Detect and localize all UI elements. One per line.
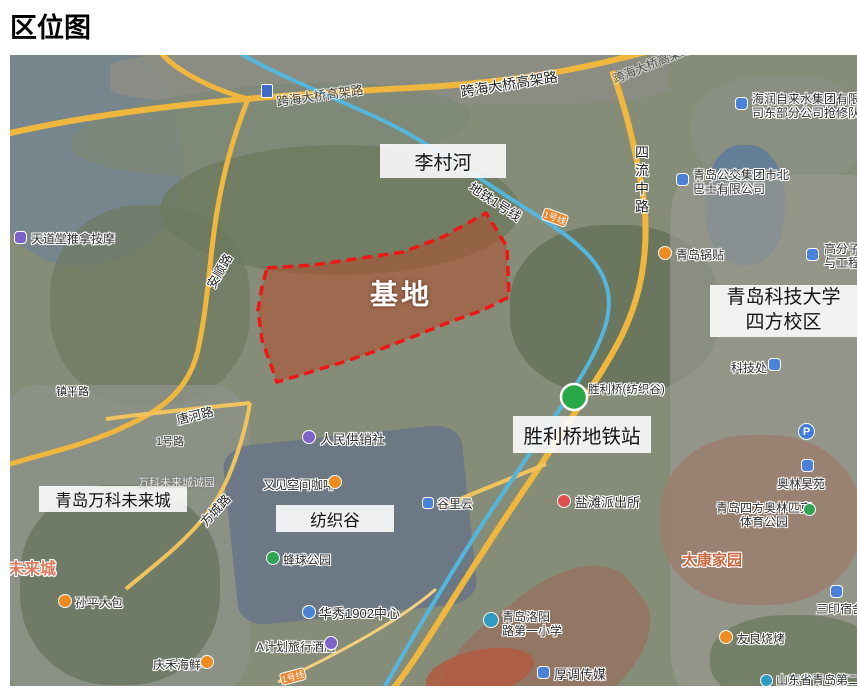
- cafe-icon: [328, 475, 342, 489]
- satellite-map: 基地 跨海大桥高架路 跨海大桥高架路 跨海大桥高架路 四流中路 安顺路 唐河路 …: [10, 55, 857, 686]
- poi-sunping-baozi: 孙平大包: [75, 596, 123, 610]
- poi-text: 高分子: [824, 242, 857, 256]
- poi-guotie-restaurant: 青岛锅贴: [676, 248, 724, 262]
- parking-icon: P: [798, 423, 815, 440]
- poi-text: 路第一小学: [502, 624, 562, 638]
- annotation-keji-university: 青岛科技大学 四方校区: [710, 285, 857, 337]
- building-icon: [801, 459, 814, 472]
- restaurant-icon: [200, 655, 214, 669]
- poi-qinghe-seafood: 庆禾海鲜: [153, 658, 201, 672]
- poi-text: 青岛洛阳: [502, 610, 562, 624]
- annotation-text: 四方校区: [745, 311, 821, 336]
- police-icon: [557, 494, 571, 508]
- poi-text: 巴士有限公司: [693, 182, 789, 196]
- road-label-yihaolu: 1号路: [156, 433, 184, 449]
- restaurant-icon: [658, 246, 672, 260]
- building-icon: [806, 248, 819, 261]
- annotation-text: 李村河: [414, 148, 471, 175]
- restaurant-icon: [58, 594, 72, 608]
- poi-text: 司东部分公司抢修队: [752, 106, 857, 120]
- building-icon: [768, 358, 781, 371]
- poi-text: 青岛公交集团市北: [693, 168, 789, 182]
- annotation-text: 青岛万科未来城: [55, 487, 171, 511]
- road-north-branch: [156, 55, 248, 99]
- station-marker: [561, 384, 587, 410]
- poi-bus-company: 青岛公交集团市北 巴士有限公司: [693, 168, 789, 196]
- poi-houdiao-media: 厚调传媒: [554, 667, 606, 682]
- building-icon: [537, 666, 550, 679]
- massage-icon: [14, 231, 27, 244]
- annotation-licunhe: 李村河: [380, 144, 506, 178]
- poi-olympic-sports-park: 青岛四方奥林匹克 体育公园: [716, 501, 812, 529]
- poi-aolin-haoyuan: 奥林昊苑: [777, 477, 825, 491]
- poi-text: 体育公园: [716, 515, 812, 529]
- building-icon: [735, 97, 748, 110]
- restaurant-icon: [719, 630, 733, 644]
- area-label-chengyuan: 万科未来城诚园: [138, 477, 215, 490]
- building-icon: [676, 173, 689, 186]
- poi-text: 青岛四方奥林匹克: [716, 501, 812, 515]
- annotation-fangzhigu: 纺织谷: [276, 505, 394, 532]
- building-icon: [830, 585, 843, 598]
- poi-gongxiaoshe: 人民供销社: [320, 432, 385, 447]
- annotation-text: 纺织谷: [310, 507, 360, 531]
- annotation-text: 青岛科技大学: [726, 286, 840, 311]
- poi-text: 与工程: [824, 256, 857, 270]
- poi-luoyang-primary-school: 青岛洛阳 路第一小学: [502, 610, 562, 638]
- site-label: 基地: [370, 273, 432, 313]
- poi-sanyin-dormitory: 三印宿舍: [816, 602, 857, 616]
- building-icon: [302, 605, 316, 619]
- area-label-taikang: 太康家园: [682, 549, 742, 570]
- poi-polymer-college: 高分子 与工程: [824, 242, 857, 270]
- road-label-siliu: 四流中路: [632, 145, 652, 217]
- area-label-weilaicheng: 未来城: [10, 555, 56, 579]
- highway-shield-icon: [261, 84, 273, 98]
- park-icon: [266, 551, 280, 565]
- school-icon: [483, 612, 499, 628]
- page-title: 区位图: [10, 6, 91, 45]
- poi-science-tech-office: 科技处: [731, 361, 767, 375]
- shop-icon: [302, 430, 316, 444]
- poi-qingdao-school: 山东省青岛第二十: [776, 673, 857, 686]
- poi-guliyun: 谷里云: [437, 497, 473, 511]
- school-icon: [760, 674, 773, 686]
- park-icon: [803, 503, 816, 516]
- station-name-label: 胜利桥(纺织谷): [588, 384, 665, 398]
- poi-massage-parlor: 天道堂推拿按摩: [31, 232, 115, 246]
- poi-cafe: 又见空间咖啡: [263, 478, 335, 492]
- building-icon: [422, 497, 434, 509]
- road-label-zhenping: 镇平路: [56, 383, 89, 399]
- poi-youliang-bbq: 友良烧烤: [737, 632, 785, 646]
- poi-fengqiu-park: 蜂球公园: [283, 553, 331, 567]
- poi-police-station: 盐滩派出所: [575, 495, 640, 510]
- annotation-shengliqiao-station: 胜利桥地铁站: [513, 416, 651, 453]
- poi-text: 海润自来水集团有限公: [752, 92, 857, 106]
- annotation-text: 胜利桥地铁站: [523, 420, 640, 449]
- poi-huaxiu-center: 华秀1902中心: [319, 606, 400, 621]
- hotel-icon: [324, 636, 338, 650]
- poi-water-company: 海润自来水集团有限公 司东部分公司抢修队: [752, 92, 857, 120]
